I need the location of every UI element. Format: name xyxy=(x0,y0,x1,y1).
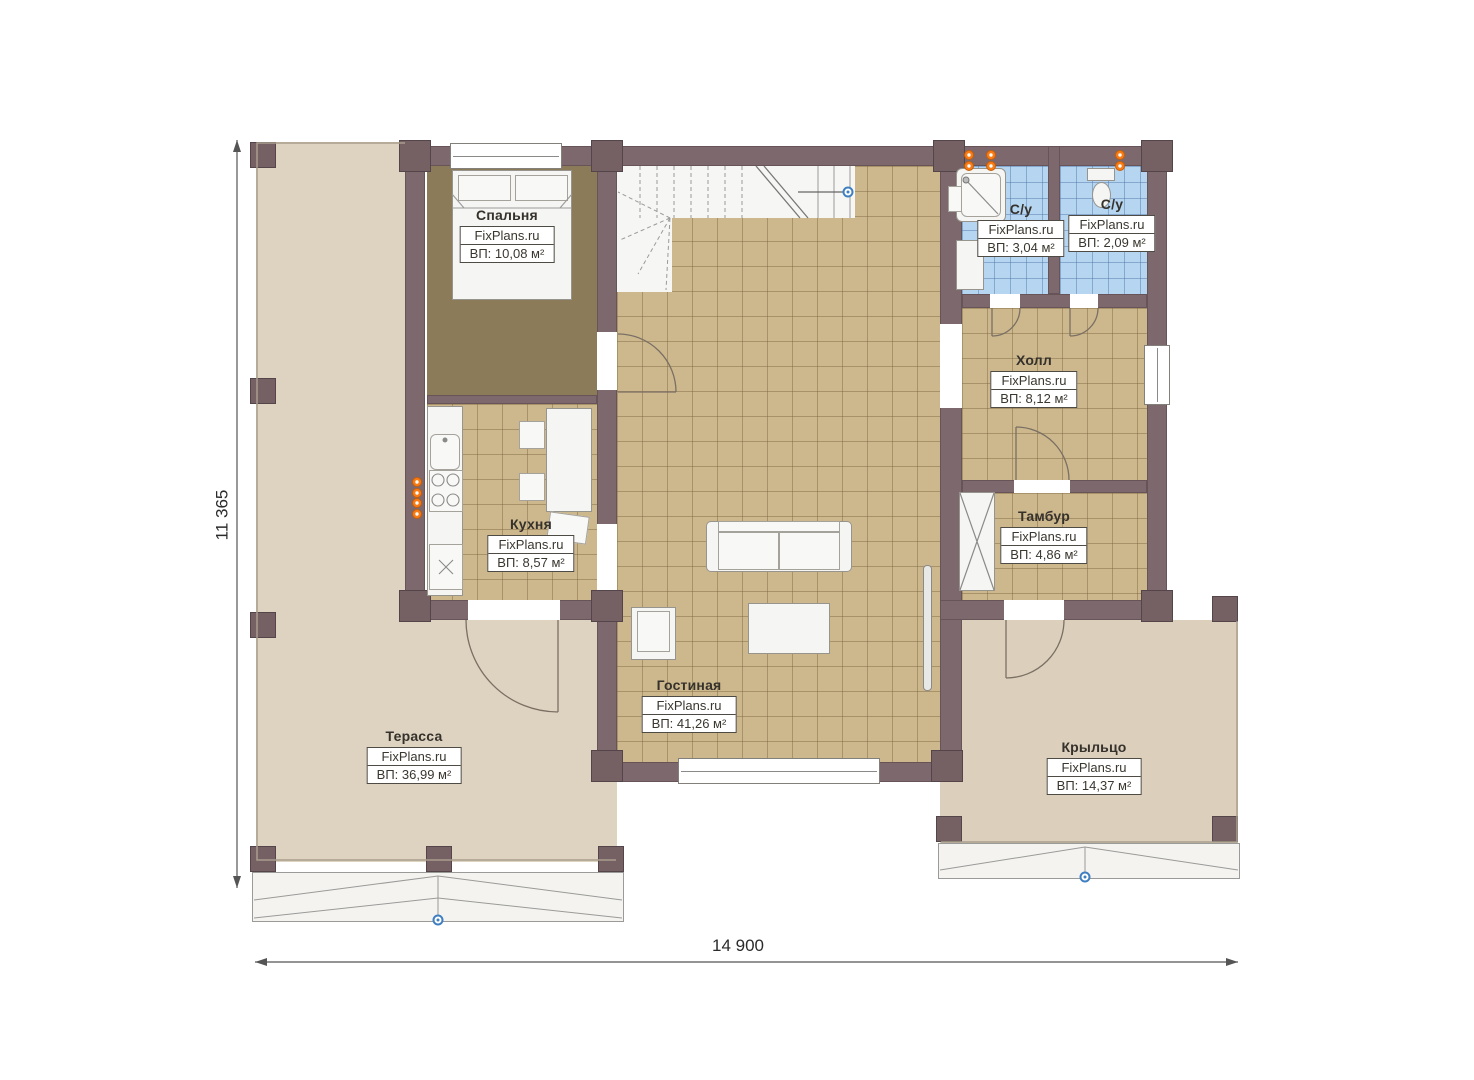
room-info-box: FixPlans.ru ВП: 10,08 м² xyxy=(460,226,555,263)
room-name: С/у xyxy=(1068,196,1155,212)
room-info-box: FixPlans.ru ВП: 8,57 м² xyxy=(487,535,574,572)
watermark-text: FixPlans.ru xyxy=(643,697,736,715)
dimension-height: 11 365 xyxy=(212,490,232,541)
watermark-text: FixPlans.ru xyxy=(488,536,573,554)
porch-post xyxy=(1212,816,1238,842)
watermark-text: FixPlans.ru xyxy=(368,748,461,766)
room-info-box: FixPlans.ru ВП: 4,86 м² xyxy=(1000,527,1087,564)
room-area: ВП: 14,37 м² xyxy=(1048,777,1141,794)
wardrobe xyxy=(959,492,995,591)
room-name: Холл xyxy=(990,352,1077,368)
vestibule-porch-door-opening xyxy=(1004,600,1064,620)
room-name: Кухня xyxy=(487,516,574,532)
terrace-steps xyxy=(252,872,624,922)
chair xyxy=(519,421,545,449)
bathroom-sink xyxy=(948,186,962,212)
porch-post xyxy=(1212,596,1238,622)
room-name: Крыльцо xyxy=(1047,739,1142,755)
room-area: ВП: 36,99 м² xyxy=(368,766,461,783)
column xyxy=(931,750,963,782)
room-label-bedroom: Спальня FixPlans.ru ВП: 10,08 м² xyxy=(460,207,555,263)
column xyxy=(591,590,623,622)
room-area: ВП: 2,09 м² xyxy=(1069,234,1154,251)
watermark-text: FixPlans.ru xyxy=(991,372,1076,390)
room-info-box: FixPlans.ru ВП: 41,26 м² xyxy=(642,696,737,733)
staircase-winder xyxy=(617,166,672,292)
room-area: ВП: 4,86 м² xyxy=(1001,546,1086,563)
sofa-cushion xyxy=(718,532,779,570)
bedroom-door-opening xyxy=(597,332,617,390)
terrace-post xyxy=(250,846,276,872)
terrace-post xyxy=(250,378,276,404)
stove xyxy=(429,470,463,512)
room-area: ВП: 41,26 м² xyxy=(643,715,736,732)
floor-plan: Спальня FixPlans.ru ВП: 10,08 м² С/у Fix… xyxy=(0,0,1474,1080)
dishwasher xyxy=(429,544,463,590)
room-name: Терасса xyxy=(367,728,462,744)
room-label-kitchen: Кухня FixPlans.ru ВП: 8,57 м² xyxy=(487,516,574,572)
column xyxy=(1141,590,1173,622)
room-label-porch: Крыльцо FixPlans.ru ВП: 14,37 м² xyxy=(1047,739,1142,795)
pillow xyxy=(515,175,568,201)
room-label-vestibule: Тамбур FixPlans.ru ВП: 4,86 м² xyxy=(1000,508,1087,564)
terrace-post xyxy=(250,612,276,638)
watermark-text: FixPlans.ru xyxy=(1001,528,1086,546)
room-info-box: FixPlans.ru ВП: 8,12 м² xyxy=(990,371,1077,408)
living-room-window xyxy=(678,758,880,784)
column xyxy=(399,140,431,172)
room-name: Спальня xyxy=(460,207,555,223)
watermark-text: FixPlans.ru xyxy=(978,221,1063,239)
room-info-box: FixPlans.ru ВП: 14,37 м² xyxy=(1047,758,1142,795)
hall-vestibule-door-opening xyxy=(1014,480,1070,493)
bathroom-wc-door-opening xyxy=(1070,294,1098,308)
room-label-living-room: Гостиная FixPlans.ru ВП: 41,26 м² xyxy=(642,677,737,733)
wall xyxy=(405,146,425,620)
porch-post xyxy=(936,816,962,842)
sofa-back xyxy=(718,521,840,532)
room-label-terrace: Терасса FixPlans.ru ВП: 36,99 м² xyxy=(367,728,462,784)
room-name: Тамбур xyxy=(1000,508,1087,524)
kitchen-passage-opening xyxy=(597,524,617,592)
room-area: ВП: 8,57 м² xyxy=(488,554,573,571)
column xyxy=(591,140,623,172)
living-hall-passage xyxy=(940,324,962,408)
watermark-text: FixPlans.ru xyxy=(1048,759,1141,777)
room-area: ВП: 8,12 м² xyxy=(991,390,1076,407)
terrace-post xyxy=(598,846,624,872)
watermark-text: FixPlans.ru xyxy=(1069,216,1154,234)
radiator xyxy=(923,565,932,691)
bedroom-window xyxy=(450,143,562,169)
room-name: С/у xyxy=(977,201,1064,217)
hall-window xyxy=(1144,345,1170,405)
kitchen-terrace-door-opening xyxy=(468,600,560,620)
dimension-width: 14 900 xyxy=(712,936,764,956)
kitchen-sink xyxy=(430,434,460,470)
room-name: Гостиная xyxy=(642,677,737,693)
column xyxy=(591,750,623,782)
sofa-cushion xyxy=(779,532,840,570)
room-area: ВП: 10,08 м² xyxy=(461,245,554,262)
terrace-post xyxy=(426,846,452,872)
coffee-table xyxy=(748,603,830,654)
toilet-tank xyxy=(1087,168,1115,181)
room-info-box: FixPlans.ru ВП: 3,04 м² xyxy=(977,220,1064,257)
room-label-bathroom-wc: С/у FixPlans.ru ВП: 2,09 м² xyxy=(1068,196,1155,252)
armchair-seat xyxy=(637,611,670,652)
room-info-box: FixPlans.ru ВП: 2,09 м² xyxy=(1068,215,1155,252)
wall xyxy=(427,395,597,404)
pillow xyxy=(458,175,511,201)
room-label-hall: Холл FixPlans.ru ВП: 8,12 м² xyxy=(990,352,1077,408)
column xyxy=(1141,140,1173,172)
porch-floor xyxy=(940,620,1238,845)
terrace-post xyxy=(250,142,276,168)
watermark-text: FixPlans.ru xyxy=(461,227,554,245)
chair xyxy=(519,473,545,501)
room-info-box: FixPlans.ru ВП: 36,99 м² xyxy=(367,747,462,784)
room-area: ВП: 3,04 м² xyxy=(978,239,1063,256)
room-label-bathroom-shower: С/у FixPlans.ru ВП: 3,04 м² xyxy=(977,201,1064,257)
dining-table xyxy=(546,408,592,512)
porch-steps xyxy=(938,843,1240,879)
bathroom-shower-door-opening xyxy=(990,294,1020,308)
